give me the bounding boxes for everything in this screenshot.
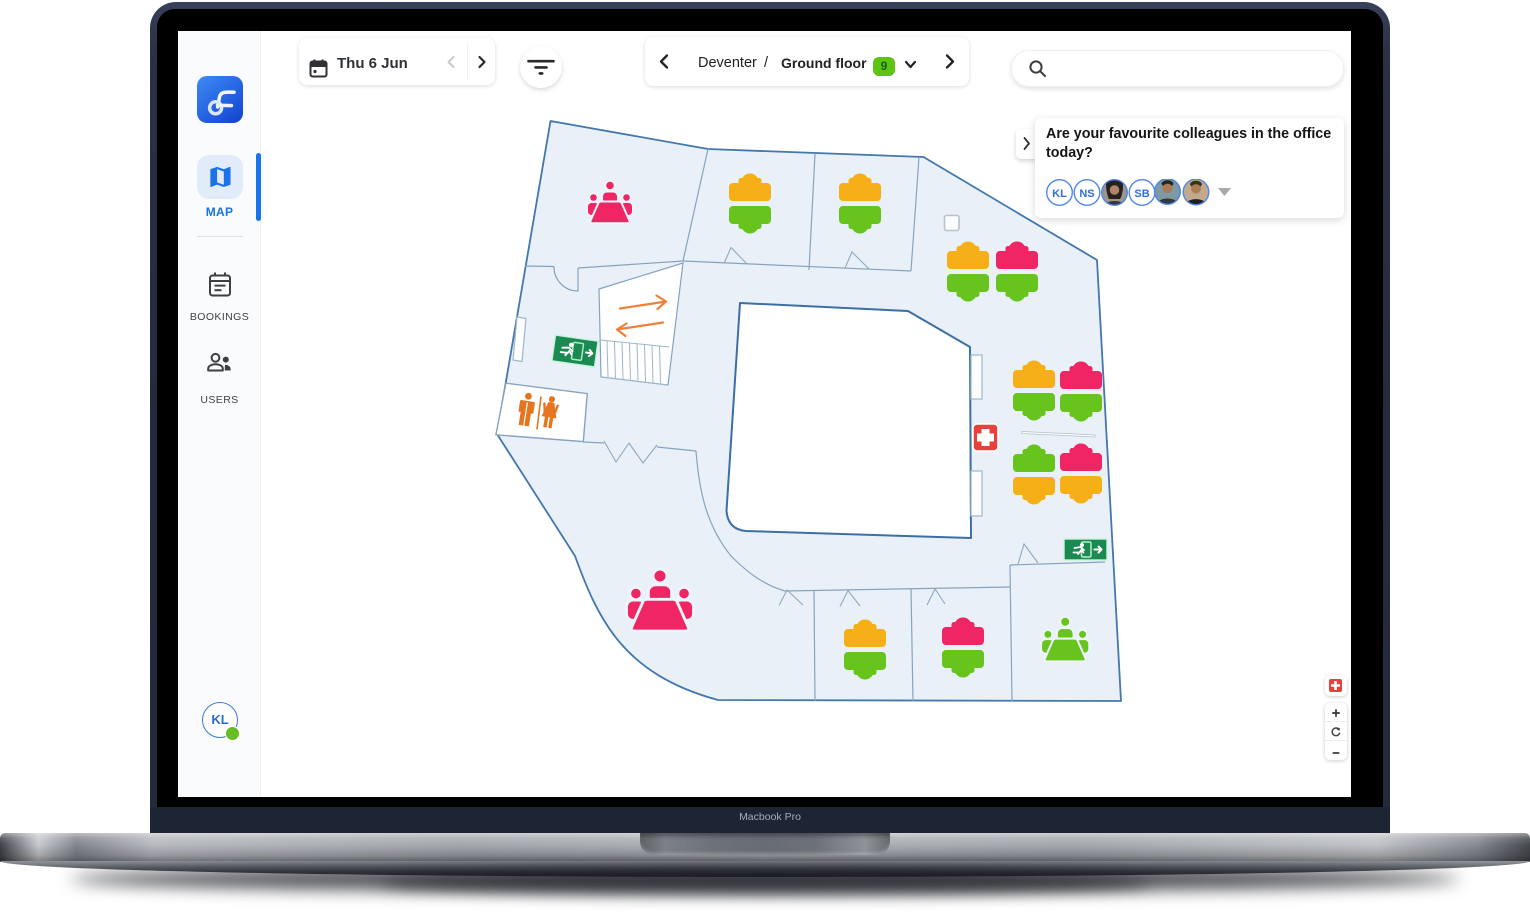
svg-text:NS: NS — [1079, 188, 1094, 200]
svg-text:KL: KL — [1052, 188, 1067, 200]
svg-text:SB: SB — [1134, 188, 1149, 200]
